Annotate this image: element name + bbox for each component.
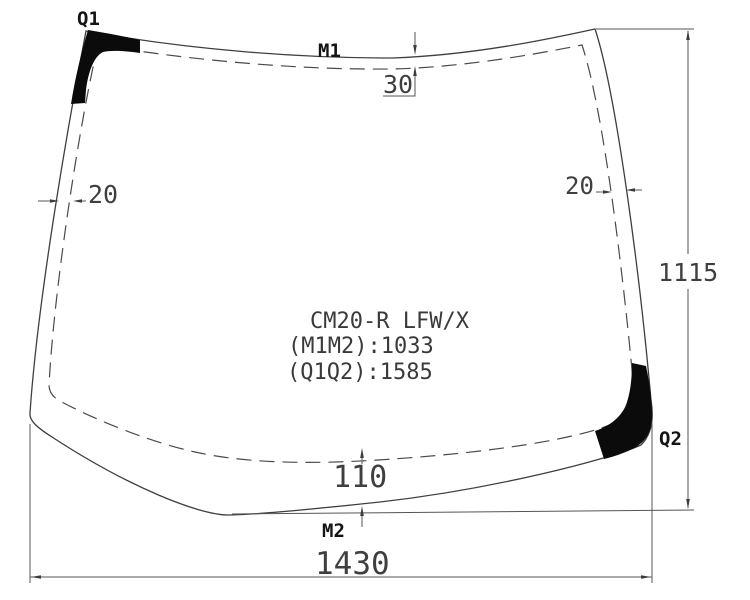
q1-corner-black-patch [71,30,140,104]
width-dimension-value: 1430 [315,546,390,582]
left-band-dimension: 20 [38,180,118,209]
windshield-drawing: 1115 1430 30 20 20 110 Q1 [0,0,750,600]
left-band-dimension-value: 20 [88,180,118,209]
height-extension-line-bottom [232,510,694,514]
q2-corner-black-patch [595,363,652,459]
part-info-block: CM20-R LFW/X (M1M2):1033 (Q1Q2):1585 [287,309,470,385]
ceramic-band-dashed-line [49,45,632,462]
q1q2-length-text: (Q1Q2):1585 [287,360,433,385]
top-band-arrow-down-icon [413,45,417,55]
width-arrow-right-icon [641,575,651,579]
m1m2-length-text: (M1M2):1033 [288,334,434,359]
height-arrow-up-icon [686,30,690,40]
windshield-diagram-canvas: 1115 1430 30 20 20 110 Q1 [0,0,750,600]
top-band-arrow-up-icon [413,66,417,76]
top-band-dimension: 30 [383,32,417,99]
point-label-m1: M1 [318,40,341,62]
part-code-text: CM20-R LFW/X [310,309,470,334]
point-label-m2: M2 [322,520,345,542]
point-label-q1: Q1 [77,8,100,30]
bottom-band-dimension: 110 [333,448,387,495]
left-band-arrow-left-icon [73,199,82,203]
right-band-dimension-value: 20 [565,172,594,200]
bottom-band-arrow-up-icon [360,448,364,458]
m2-marker: M2 [322,506,364,542]
right-band-dimension: 20 [565,172,642,200]
windshield-outer-outline [30,29,652,515]
width-arrow-left-icon [31,575,41,579]
m2-arrow-up-icon [360,506,364,516]
height-dimension-value: 1115 [658,258,718,287]
point-label-q2: Q2 [659,428,682,450]
width-dimension: 1430 [30,422,652,583]
height-arrow-down-icon [686,499,690,509]
left-band-arrow-right-icon [50,199,59,203]
bottom-band-dimension-value: 110 [333,460,387,495]
top-band-dimension-value: 30 [383,70,413,99]
height-dimension: 1115 [232,29,718,514]
